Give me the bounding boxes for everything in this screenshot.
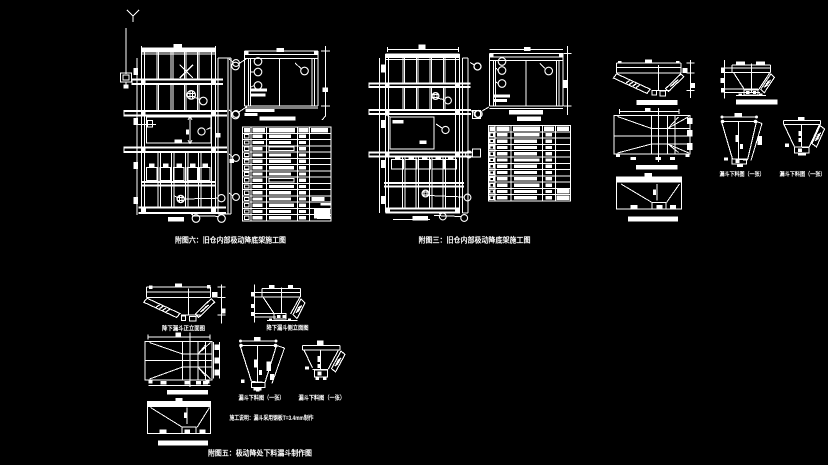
svg-text:降下漏斗正立面图: 降下漏斗正立面图 xyxy=(162,325,205,333)
svg-text:附图三：旧仓内部极动降底架施工图: 附图三：旧仓内部极动降底架施工图 xyxy=(419,236,531,245)
svg-text:漏斗下料图（一张）: 漏斗下料图（一张） xyxy=(720,170,765,178)
svg-text:施工说明：漏斗采用钢板T=3.4mm制作: 施工说明：漏斗采用钢板T=3.4mm制作 xyxy=(230,414,314,422)
svg-text:附图六：旧仓内部极动降底架施工图: 附图六：旧仓内部极动降底架施工图 xyxy=(175,236,286,245)
svg-text:漏斗下料图（一张）: 漏斗下料图（一张） xyxy=(239,394,285,402)
svg-text:降下漏斗侧立面图: 降下漏斗侧立面图 xyxy=(267,324,309,332)
svg-text:附图五：极动降处下料漏斗制作图: 附图五：极动降处下料漏斗制作图 xyxy=(208,449,312,458)
svg-text:漏斗下料图（一张）: 漏斗下料图（一张） xyxy=(299,394,346,402)
svg-text:漏斗下料图（一张）: 漏斗下料图（一张） xyxy=(780,170,826,178)
